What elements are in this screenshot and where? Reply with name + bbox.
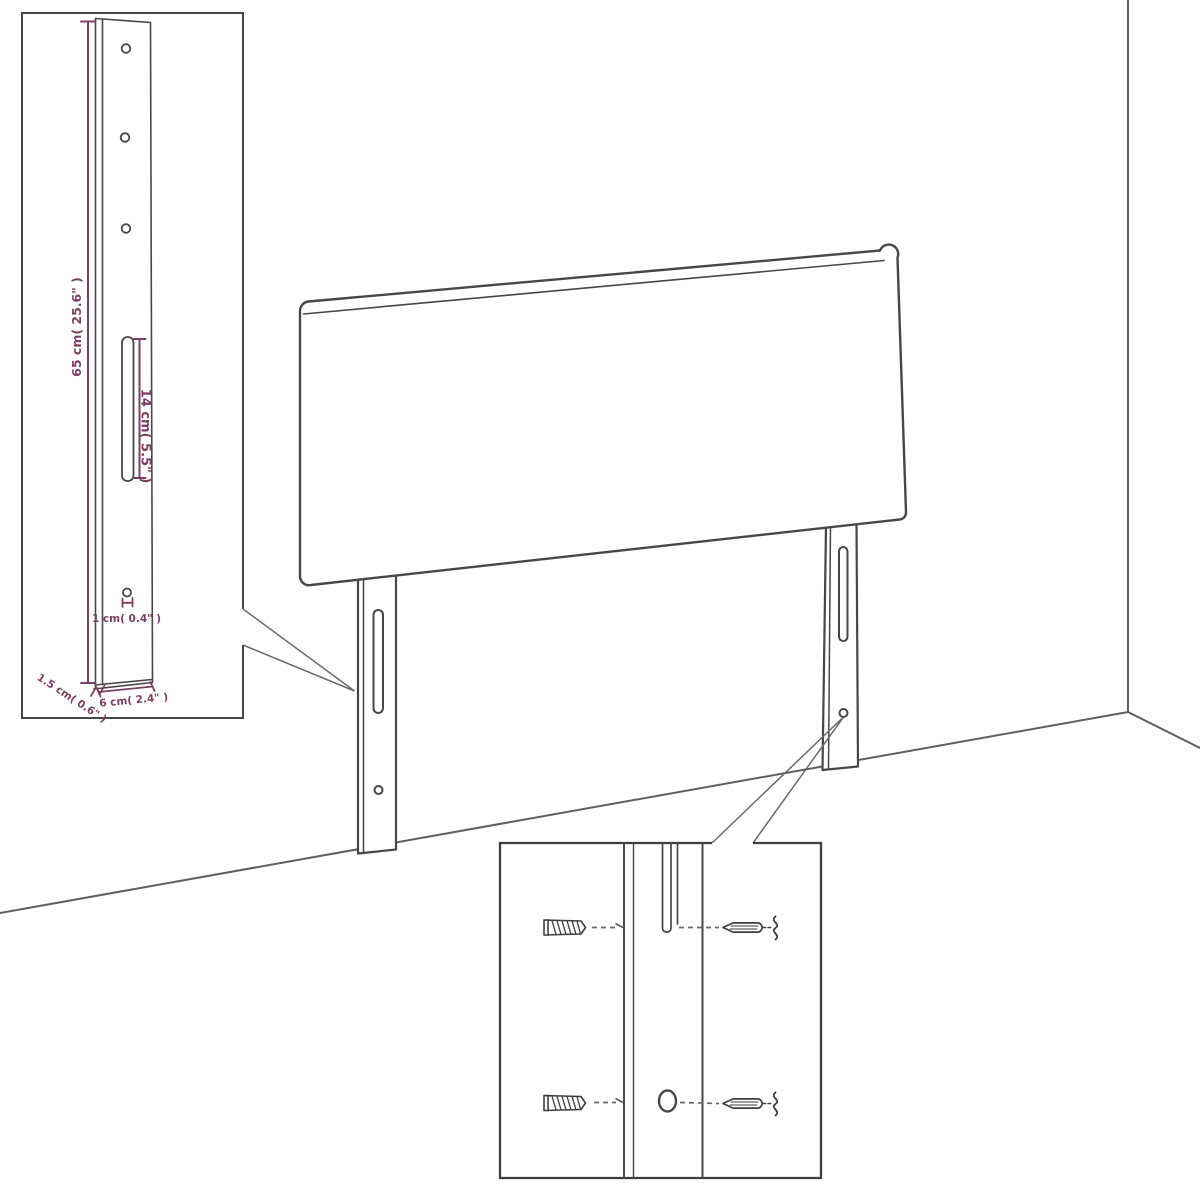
slot-dimension-label: 14 cm( 5.5" ) <box>138 389 153 484</box>
callout-wedge-left <box>243 609 355 691</box>
post-dimension-inset: 65 cm( 25.6" ) 14 cm( 5.5" ) 1 cm( 0.4" … <box>22 13 243 725</box>
wall-anchor-icon <box>544 920 586 935</box>
headboard <box>300 245 906 854</box>
headboard-panel <box>300 245 906 586</box>
wall-anchor-icon <box>544 1095 586 1110</box>
height-dimension-label: 65 cm( 25.6" ) <box>69 277 84 377</box>
hole-dimension-label: 1 cm( 0.4" ) <box>92 613 161 625</box>
inset-box <box>500 843 821 1178</box>
callout-wedge-right <box>712 717 844 843</box>
callout-wedges <box>243 609 844 843</box>
wall-mount-inset <box>500 843 821 1178</box>
headboard-assembly-diagram: 65 cm( 25.6" ) 14 cm( 5.5" ) 1 cm( 0.4" … <box>0 0 1200 1200</box>
diagram-canvas: 65 cm( 25.6" ) 14 cm( 5.5" ) 1 cm( 0.4" … <box>0 0 1200 1200</box>
headboard-left-leg <box>358 574 396 854</box>
